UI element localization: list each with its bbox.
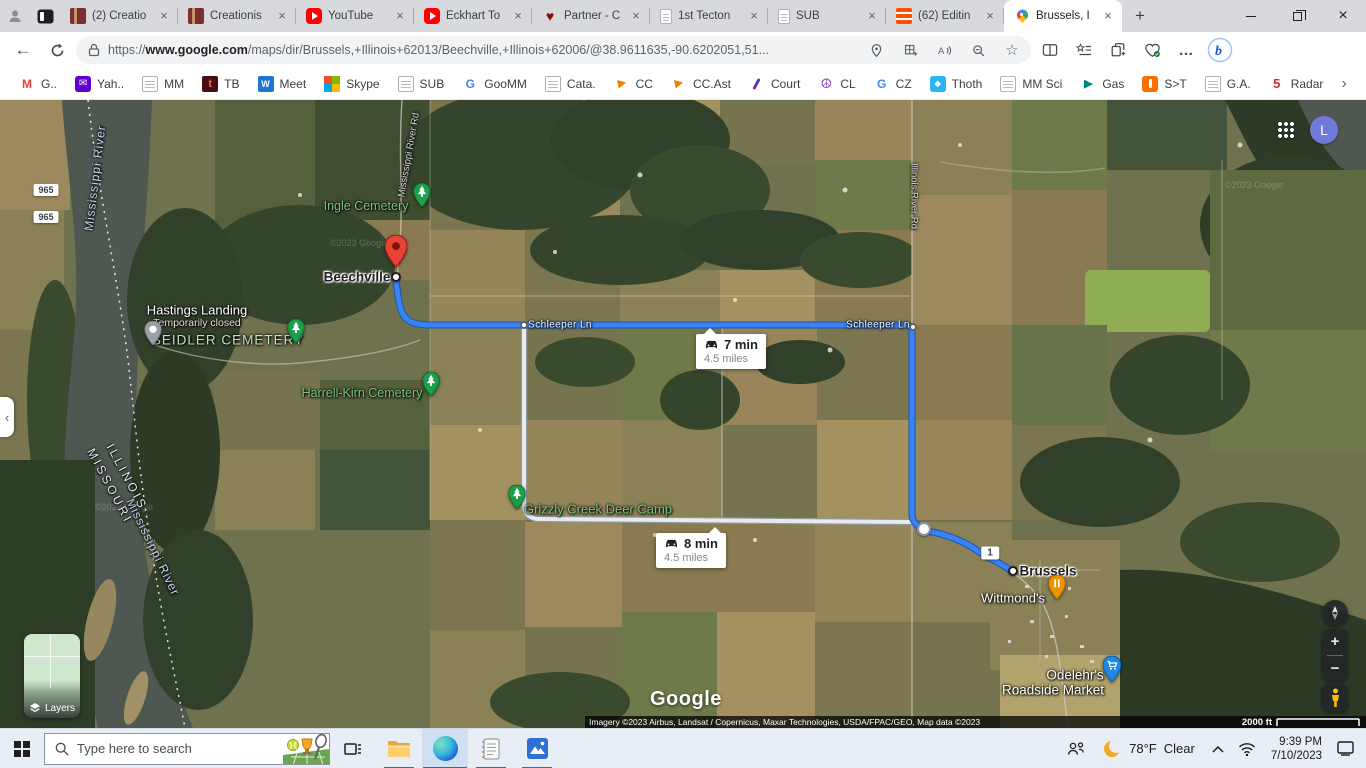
browser-tab[interactable]: YouTube × — [296, 0, 414, 32]
tennis-doodle — [283, 733, 329, 765]
bookmark-favicon — [874, 76, 890, 92]
url-scheme: https:// — [108, 43, 146, 57]
wifi-button[interactable] — [1231, 729, 1263, 768]
tab-title: 1st Tecton — [678, 10, 740, 22]
route-shield-965: 965 — [33, 211, 58, 223]
dot-pin-icon — [145, 321, 162, 345]
poi-label-ingle-cemetery[interactable]: Ingle Cemetery — [324, 199, 409, 213]
url-host: www.google.com — [146, 43, 248, 57]
imagery-watermark: ©2023 Google — [330, 238, 388, 248]
car-icon — [664, 538, 679, 549]
tab-close-icon[interactable]: × — [864, 8, 880, 24]
taskbar-app-photos[interactable] — [514, 729, 560, 768]
minimize-icon — [1246, 16, 1256, 17]
desktop: (2) Creatio × Creationis × YouTube × Eck… — [0, 0, 1366, 768]
bookmark-label: CZ — [896, 77, 912, 91]
route-duration: 8 min — [684, 536, 718, 551]
file-explorer-icon — [387, 739, 411, 759]
bookmark-favicon — [671, 76, 687, 92]
favorites-list-icon[interactable] — [1069, 35, 1099, 65]
tree-icon — [288, 319, 305, 343]
browser-tab[interactable]: SUB × — [768, 0, 886, 32]
back-button[interactable]: ← — [8, 35, 38, 65]
taskbar-app-edge-active[interactable] — [422, 729, 468, 768]
bookmark-item[interactable]: TB — [193, 72, 248, 96]
road-label-schleeper-ln: Schleeper Ln — [846, 320, 910, 331]
bookmark-label: CC — [636, 77, 653, 91]
bookmark-favicon — [1080, 76, 1096, 92]
tab-title: Brussels, I — [1036, 10, 1094, 22]
tree-icon — [509, 485, 526, 509]
bookmark-favicon — [1142, 76, 1158, 92]
bookmark-item[interactable]: CC — [605, 72, 662, 96]
zoom-in-button[interactable]: + — [1322, 629, 1348, 655]
taskbar-app-file-explorer[interactable] — [376, 729, 422, 768]
action-center-button[interactable] — [1330, 729, 1366, 768]
clock-date: 7/10/2023 — [1271, 749, 1322, 763]
tab-close-icon[interactable]: × — [392, 8, 408, 24]
bookmark-favicon — [1205, 76, 1221, 92]
bookmark-label: Thoth — [952, 77, 983, 91]
road-label-illinois-river-rd: Illinois River Rd — [909, 163, 920, 229]
route-duration: 7 min — [724, 337, 758, 352]
tab-title: Partner - C — [564, 10, 622, 22]
url-text[interactable]: https://www.google.com/maps/dir/Brussels… — [108, 43, 855, 57]
bookmark-favicon — [75, 76, 91, 92]
moon-icon — [1102, 739, 1122, 759]
route-shield-1: 1 — [981, 547, 999, 560]
browser-tab[interactable]: (62) Editin × — [886, 0, 1004, 32]
bookmark-favicon — [818, 76, 834, 92]
bookmark-favicon — [258, 76, 274, 92]
poi-label-odelehrs-line1[interactable]: Odelehr's — [1046, 668, 1103, 683]
poi-label-hastings-landing[interactable]: Hastings Landing — [147, 303, 247, 318]
bookmark-item[interactable]: G.. — [10, 72, 66, 96]
route-distance: 4.5 miles — [704, 353, 758, 365]
browser-tab[interactable]: Creationis × — [178, 0, 296, 32]
taskbar-search[interactable] — [44, 733, 330, 765]
bookmark-label: MM Sci — [1022, 77, 1062, 91]
notepad-icon — [481, 738, 501, 760]
bookmark-item[interactable]: S>T — [1133, 72, 1195, 96]
favorite-star-icon[interactable]: ☆ — [999, 37, 1025, 63]
browser-tab-strip: (2) Creatio × Creationis × YouTube × Eck… — [0, 0, 1366, 32]
clock-time: 9:39 PM — [1271, 735, 1322, 749]
tab-favicon — [1014, 8, 1030, 24]
route-drag-handle[interactable] — [917, 522, 931, 536]
route-waypoint-dot[interactable] — [520, 321, 528, 329]
shopping-cart-icon — [1103, 656, 1121, 682]
compass-button[interactable] — [1322, 600, 1348, 626]
weather-temp: 78°F — [1129, 741, 1157, 756]
collections-icon[interactable] — [1103, 35, 1133, 65]
windows-taskbar: 78°F Clear 9:39 PM 7/10/2023 — [0, 728, 1366, 768]
bookmark-label: Yah.. — [97, 77, 124, 91]
bookmark-favicon — [1269, 76, 1285, 92]
tab-favicon — [70, 8, 86, 24]
google-apps-grid-icon[interactable] — [1277, 121, 1295, 139]
tab-close-icon[interactable]: × — [746, 8, 762, 24]
map-canvas[interactable]: ©2023 Google ©2023 Google ©2023 Google M… — [0, 100, 1366, 728]
math-solver-icon[interactable] — [897, 37, 923, 63]
bookmark-favicon — [398, 76, 414, 92]
taskbar-app-notepad[interactable] — [468, 729, 514, 768]
route-waypoint-dot[interactable] — [909, 323, 917, 331]
tree-icon — [414, 183, 431, 207]
restaurant-pin-wittmonds[interactable] — [1049, 575, 1066, 604]
read-aloud-icon[interactable]: A — [931, 37, 957, 63]
bookmark-item[interactable]: Skype — [315, 72, 388, 96]
bookmark-item[interactable]: GooMM — [453, 72, 536, 96]
tab-title: (2) Creatio — [92, 10, 150, 22]
close-window-button[interactable]: × — [1320, 0, 1366, 32]
show-hidden-icons-button[interactable] — [1205, 729, 1231, 768]
zoom-control: + − — [1322, 629, 1348, 681]
shopping-pin-odelehrs[interactable] — [1103, 656, 1121, 687]
tree-pin-seidler-cemetery[interactable] — [288, 319, 305, 348]
tab-title: Creationis — [210, 10, 268, 22]
restore-button[interactable] — [1274, 0, 1320, 32]
bookmark-favicon — [19, 76, 35, 92]
bookmark-item[interactable]: G.A. — [1196, 72, 1260, 96]
browser-tab[interactable]: Partner - C × — [532, 0, 650, 32]
bookmark-label: Cata. — [567, 77, 596, 91]
scale-text: 2000 ft — [1242, 717, 1272, 728]
weather-widget[interactable]: 78°F Clear — [1092, 739, 1205, 759]
browser-tab[interactable]: Brussels, I × — [1004, 0, 1122, 32]
bookmark-favicon — [324, 76, 340, 92]
bookmark-label: G.. — [41, 77, 57, 91]
tree-icon — [423, 372, 440, 396]
bookmark-label: SUB — [420, 77, 445, 91]
satellite-imagery — [0, 100, 1366, 728]
search-input[interactable] — [77, 741, 275, 756]
tab-strip: (2) Creatio × Creationis × YouTube × Eck… — [60, 0, 1122, 32]
bookmark-item[interactable]: SUB — [389, 72, 454, 96]
browser-tab[interactable]: (2) Creatio × — [60, 0, 178, 32]
tab-favicon — [778, 9, 790, 24]
route-callout-alternate[interactable]: 8 min 4.5 miles — [656, 533, 726, 568]
svg-text:b: b — [1215, 44, 1222, 59]
browser-toolbar: ← https://www.google.com/maps/dir/Brusse… — [0, 32, 1366, 68]
bookmark-favicon — [614, 76, 630, 92]
bookmark-label: S>T — [1164, 77, 1186, 91]
tab-close-icon[interactable]: × — [156, 8, 172, 24]
bookmark-label: Court — [771, 77, 800, 91]
map-attribution-bar: Imagery ©2023 Airbus, Landsat / Copernic… — [585, 716, 1366, 728]
destination-pin-beechville[interactable] — [385, 235, 407, 272]
bookmark-item[interactable]: CL — [809, 72, 864, 96]
tab-title: Eckhart To — [446, 10, 504, 22]
bookmark-favicon — [1000, 76, 1016, 92]
bookmark-item[interactable]: Cata. — [536, 72, 605, 96]
notification-icon — [1337, 741, 1354, 756]
bookmark-label: MM — [164, 77, 184, 91]
window-icon — [37, 9, 54, 24]
scale-bar — [1276, 718, 1360, 727]
poi-label-odelehrs-line2[interactable]: Roadside Market — [1002, 683, 1104, 698]
bookmark-label: CL — [840, 77, 855, 91]
refresh-icon — [50, 43, 65, 58]
bookmark-item[interactable]: Meet — [249, 72, 316, 96]
bing-discover-icon[interactable]: b — [1205, 35, 1235, 65]
pegman-icon — [1330, 688, 1341, 708]
bookmark-favicon — [749, 76, 765, 92]
workspaces-icon[interactable] — [30, 0, 60, 32]
bookmark-item[interactable]: Court — [740, 72, 809, 96]
settings-menu-icon[interactable]: … — [1171, 35, 1201, 65]
bookmark-favicon — [462, 76, 478, 92]
bookmark-favicon — [545, 76, 561, 92]
account-avatar[interactable]: L — [1310, 116, 1338, 144]
wifi-icon — [1238, 742, 1256, 756]
start-button[interactable] — [0, 729, 44, 768]
layers-icon — [29, 702, 41, 714]
bookmark-label: Meet — [280, 77, 307, 91]
split-screen-icon[interactable] — [1035, 35, 1065, 65]
bookmark-label: Skype — [346, 77, 379, 91]
bookmark-item[interactable]: CC.Ast — [662, 72, 740, 96]
edge-icon — [433, 736, 458, 761]
tab-close-icon[interactable]: × — [628, 8, 644, 24]
bookmark-item[interactable]: Thoth — [921, 72, 992, 96]
tab-title: SUB — [796, 10, 858, 22]
tree-pin-ingle-cemetery[interactable] — [414, 183, 431, 212]
tab-close-icon[interactable]: × — [510, 8, 526, 24]
poi-label-grizzly-creek-deer-camp[interactable]: Grizzly Creek Deer Camp — [524, 502, 672, 517]
tab-title: YouTube — [328, 10, 386, 22]
bookmark-favicon — [202, 76, 218, 92]
route-endpoint-brussels[interactable] — [1008, 566, 1018, 576]
browser-essentials-icon[interactable] — [1137, 35, 1167, 65]
bookmark-label: CC.Ast — [693, 77, 731, 91]
location-pin-icon[interactable] — [863, 37, 889, 63]
zoom-out-button[interactable]: − — [1322, 656, 1348, 682]
bookmark-favicon — [930, 76, 946, 92]
tab-favicon — [896, 8, 912, 24]
people-button[interactable] — [1060, 729, 1092, 768]
profile-icon[interactable] — [0, 0, 30, 32]
windows-logo-icon — [14, 741, 30, 757]
tab-title: (62) Editin — [918, 10, 976, 22]
tab-close-icon[interactable]: × — [1100, 8, 1116, 24]
tab-favicon — [188, 8, 204, 24]
bookmark-label: Gas — [1102, 77, 1124, 91]
refresh-button[interactable] — [42, 35, 72, 65]
bookmarks-bar: G.. Yah.. MM TB Meet Skype SUB G — [0, 68, 1366, 100]
red-marker-icon — [385, 235, 407, 267]
map-scale: 2000 ft — [1242, 717, 1360, 728]
bookmarks-overflow-chevron[interactable]: › — [1332, 75, 1356, 93]
bookmark-item[interactable]: CZ — [865, 72, 921, 96]
layers-label: Layers — [45, 703, 75, 714]
browser-tab[interactable]: 1st Tecton × — [650, 0, 768, 32]
route-endpoint-beechville[interactable] — [391, 272, 401, 282]
tab-favicon — [542, 8, 558, 24]
bookmark-item[interactable]: MM Sci — [991, 72, 1071, 96]
bookmark-label: G.A. — [1227, 77, 1251, 91]
layers-button[interactable]: Layers — [24, 634, 80, 718]
bookmark-item[interactable]: Radar — [1260, 72, 1333, 96]
system-tray: 78°F Clear 9:39 PM 7/10/2023 — [1060, 729, 1366, 768]
lock-icon — [88, 43, 100, 57]
compass-needle-icon — [1329, 606, 1341, 620]
poi-label-harrell-kirn-cemetery[interactable]: Harrell-Kirn Cemetery — [302, 386, 423, 400]
bookmark-label: GooMM — [484, 77, 527, 91]
poi-label-wittmonds[interactable]: Wittmond's — [981, 591, 1045, 606]
tree-pin-grizzly-creek[interactable] — [509, 485, 526, 514]
poi-status-temporarily-closed: Temporarily closed — [153, 317, 241, 329]
gray-pin-hastings-landing[interactable] — [145, 321, 162, 350]
person-icon — [7, 8, 23, 24]
route-callout-primary[interactable]: 7 min 4.5 miles — [696, 334, 766, 369]
browser-tab[interactable]: Eckhart To × — [414, 0, 532, 32]
google-map-logo[interactable]: Google — [650, 688, 722, 711]
photos-icon — [526, 737, 549, 760]
tab-favicon — [424, 8, 440, 24]
people-icon — [1067, 741, 1085, 757]
bookmark-favicon — [142, 76, 158, 92]
minimize-button[interactable] — [1228, 0, 1274, 32]
side-panel-collapse-button[interactable]: ‹ — [0, 397, 14, 437]
tab-favicon — [660, 9, 672, 24]
zoom-out-icon[interactable] — [965, 37, 991, 63]
imagery-attribution: Imagery ©2023 Airbus, Landsat / Copernic… — [589, 717, 980, 727]
road-label-schleeper-ln: Schleeper Ln — [528, 320, 592, 331]
route-distance: 4.5 miles — [664, 552, 718, 564]
bookmark-item[interactable]: Gas — [1071, 72, 1133, 96]
tab-close-icon[interactable]: × — [982, 8, 998, 24]
tab-favicon — [306, 8, 322, 24]
bookmarks-list: G.. Yah.. MM TB Meet Skype SUB G — [10, 72, 1332, 96]
town-label-beechville[interactable]: Beechville — [324, 270, 391, 285]
bookmark-item[interactable]: Yah.. — [66, 72, 133, 96]
address-bar[interactable]: https://www.google.com/maps/dir/Brussels… — [76, 36, 1031, 64]
task-view-button[interactable] — [330, 729, 376, 768]
poi-label-seidler-cemetery[interactable]: SEIDLER CEMETERY — [152, 333, 304, 348]
layers-thumbnail — [24, 634, 80, 688]
car-icon — [704, 339, 719, 350]
taskbar-clock[interactable]: 9:39 PM 7/10/2023 — [1263, 735, 1330, 763]
window-controls: × — [1228, 0, 1366, 32]
chevron-up-icon — [1212, 745, 1224, 753]
imagery-watermark: ©2023 Google — [1225, 180, 1283, 190]
weather-condition: Clear — [1164, 741, 1195, 756]
tree-pin-harrell-kirn-cemetery[interactable] — [423, 372, 440, 401]
svg-text:A: A — [938, 45, 945, 55]
restaurant-icon — [1049, 575, 1066, 599]
url-path: /maps/dir/Brussels,+Illinois+62013/Beech… — [248, 43, 769, 57]
bookmark-item[interactable]: MM — [133, 72, 193, 96]
bookmark-label: TB — [224, 77, 239, 91]
pegman-button[interactable] — [1322, 684, 1348, 712]
search-icon — [55, 742, 69, 756]
tab-close-icon[interactable]: × — [274, 8, 290, 24]
task-view-icon — [344, 741, 362, 757]
restore-icon — [1293, 12, 1302, 21]
new-tab-button[interactable]: + — [1126, 2, 1154, 30]
route-shield-965: 965 — [33, 184, 58, 196]
bookmark-label: Radar — [1291, 77, 1324, 91]
